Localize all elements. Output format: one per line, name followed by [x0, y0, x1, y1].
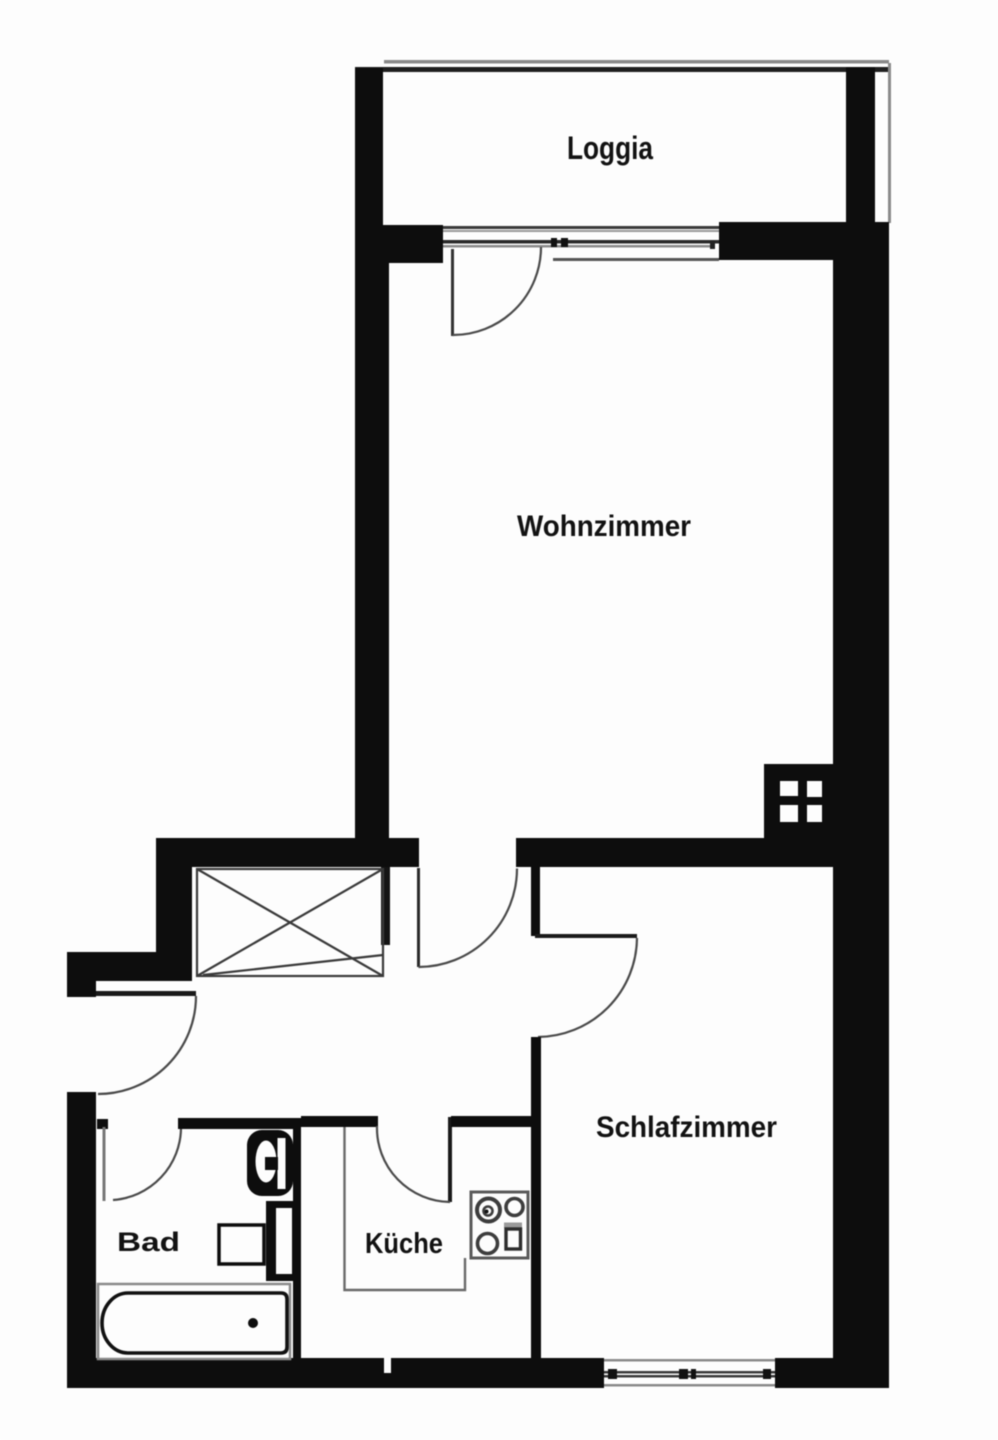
- svg-text:Küche: Küche: [365, 1228, 443, 1260]
- svg-text:Schlafzimmer: Schlafzimmer: [596, 1111, 777, 1144]
- svg-text:Bad: Bad: [117, 1227, 180, 1257]
- svg-text:Wohnzimmer: Wohnzimmer: [517, 510, 691, 543]
- svg-text:Loggia: Loggia: [567, 130, 653, 166]
